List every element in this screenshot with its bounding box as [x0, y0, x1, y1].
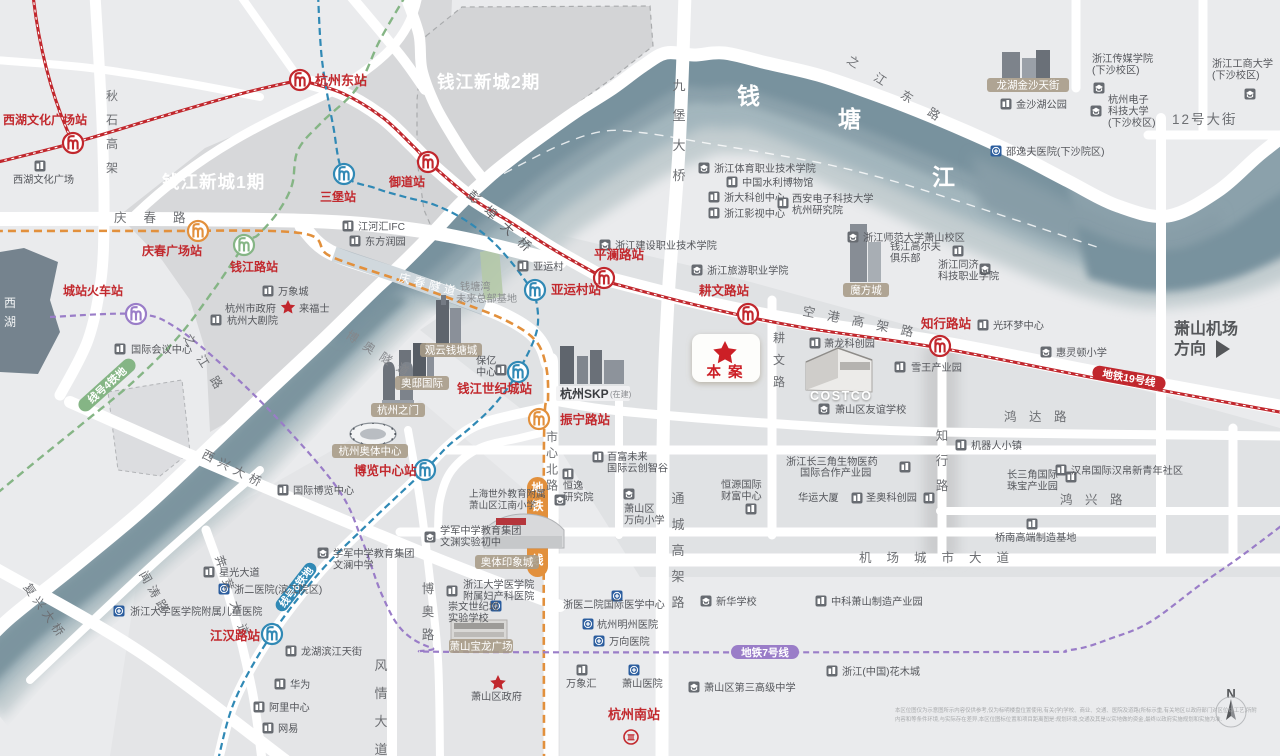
svg-text:江汉路站: 江汉路站 — [210, 628, 261, 643]
svg-text:中心: 中心 — [476, 366, 496, 379]
svg-text:学军中学教育集团: 学军中学教育集团 — [440, 524, 522, 537]
svg-text:COSTCO: COSTCO — [810, 389, 872, 403]
svg-text:魔方城: 魔方城 — [850, 284, 882, 297]
svg-text:未来总部基地: 未来总部基地 — [456, 292, 517, 305]
svg-text:庆春路: 庆春路 — [114, 210, 203, 225]
svg-text:萧山区友谊学校: 萧山区友谊学校 — [835, 403, 906, 416]
svg-text:浙江传媒学院: 浙江传媒学院 — [1092, 52, 1153, 65]
svg-text:杭州奥体中心: 杭州奥体中心 — [339, 445, 402, 458]
svg-text:通: 通 — [671, 491, 684, 506]
svg-text:萧山机场: 萧山机场 — [1174, 319, 1238, 338]
svg-text:浙江长三角生物医药: 浙江长三角生物医药 — [786, 455, 878, 468]
svg-text:文澜中学: 文澜中学 — [333, 559, 374, 572]
svg-text:堡: 堡 — [672, 108, 685, 123]
svg-text:桥南高端制造基地: 桥南高端制造基地 — [995, 531, 1077, 544]
svg-text:情: 情 — [374, 686, 387, 701]
svg-text:江河汇IFC: 江河汇IFC — [358, 220, 405, 233]
svg-text:杭州大剧院: 杭州大剧院 — [227, 314, 278, 327]
svg-text:国际会议中心: 国际会议中心 — [131, 343, 192, 356]
svg-text:秋: 秋 — [106, 89, 118, 103]
svg-text:(下沙校区): (下沙校区) — [1092, 64, 1140, 77]
svg-text:俱乐部: 俱乐部 — [890, 252, 921, 265]
svg-text:网易: 网易 — [278, 723, 298, 735]
svg-text:浙江体育职业技术学院: 浙江体育职业技术学院 — [714, 162, 816, 175]
svg-text:邵逸夫医院(下沙院区): 邵逸夫医院(下沙院区) — [1006, 145, 1104, 158]
svg-text:华为: 华为 — [290, 678, 310, 691]
svg-text:耕文路站: 耕文路站 — [699, 283, 750, 298]
svg-text:浙大科创中心: 浙大科创中心 — [724, 191, 785, 204]
svg-text:浙二医院(滨江院区): 浙二医院(滨江院区) — [234, 583, 322, 596]
svg-text:风: 风 — [374, 658, 387, 673]
svg-text:心: 心 — [546, 446, 558, 460]
svg-text:国际博览中心: 国际博览中心 — [293, 484, 354, 497]
svg-text:塘: 塘 — [838, 106, 861, 132]
svg-text:东方润园: 东方润园 — [365, 235, 406, 248]
svg-text:西湖文化广场站: 西湖文化广场站 — [3, 112, 87, 127]
svg-text:高: 高 — [671, 543, 684, 558]
svg-text:浙江(中国)花木城: 浙江(中国)花木城 — [842, 665, 920, 678]
svg-text:博览中心站: 博览中心站 — [354, 463, 417, 478]
svg-text:振宁路站: 振宁路站 — [560, 412, 611, 427]
svg-text:浙江旅游职业学院: 浙江旅游职业学院 — [707, 264, 789, 277]
svg-text:钱塘湾: 钱塘湾 — [460, 280, 491, 293]
svg-text:杭州东站: 杭州东站 — [315, 73, 367, 88]
svg-text:浙江大学医学院: 浙江大学医学院 — [463, 578, 534, 591]
svg-text:城站火车站: 城站火车站 — [63, 283, 123, 298]
svg-text:鸿达路: 鸿达路 — [1004, 409, 1079, 424]
svg-text:珠宝产业园: 珠宝产业园 — [1007, 480, 1058, 493]
svg-text:(下沙校区): (下沙校区) — [1108, 116, 1156, 129]
svg-text:恒源国际: 恒源国际 — [721, 478, 762, 491]
svg-text:路: 路 — [671, 595, 684, 610]
svg-text:萧山区政府: 萧山区政府 — [471, 690, 522, 703]
svg-text:方向: 方向 — [1174, 339, 1206, 358]
svg-text:学军中学教育集团: 学军中学教育集团 — [333, 547, 415, 560]
svg-text:光环梦中心: 光环梦中心 — [993, 319, 1044, 332]
svg-text:架: 架 — [671, 569, 684, 584]
svg-text:知: 知 — [936, 429, 949, 443]
svg-text:市: 市 — [546, 429, 558, 444]
svg-text:鸿兴路: 鸿兴路 — [1060, 492, 1135, 507]
svg-text:新华学校: 新华学校 — [716, 595, 757, 608]
svg-text:萧山宝龙广场: 萧山宝龙广场 — [450, 640, 513, 653]
svg-text:万象汇: 万象汇 — [566, 677, 597, 690]
svg-text:研究院: 研究院 — [563, 491, 594, 504]
svg-text:万向医院: 万向医院 — [609, 635, 650, 648]
svg-text:萧山医院: 萧山医院 — [622, 677, 663, 690]
svg-text:中国水利博物馆: 中国水利博物馆 — [742, 176, 813, 189]
svg-text:御道站: 御道站 — [388, 174, 425, 189]
svg-text:本案: 本案 — [707, 363, 750, 381]
svg-text:科技职业学院: 科技职业学院 — [938, 270, 999, 283]
svg-text:恒逸: 恒逸 — [563, 479, 583, 492]
svg-text:实验学校: 实验学校 — [448, 612, 489, 625]
svg-text:杭州SKP: 杭州SKP — [560, 386, 609, 401]
svg-text:西: 西 — [4, 296, 16, 310]
svg-text:万象城: 万象城 — [278, 286, 309, 298]
svg-text:西安电子科技大学: 西安电子科技大学 — [792, 192, 874, 205]
svg-text:大: 大 — [672, 138, 685, 153]
svg-text:九: 九 — [672, 78, 685, 93]
svg-text:萧山区江南小学: 萧山区江南小学 — [469, 500, 537, 512]
svg-text:钱: 钱 — [737, 83, 760, 109]
svg-text:N: N — [1226, 686, 1235, 701]
svg-text:博: 博 — [422, 581, 435, 596]
svg-text:12号大街: 12号大街 — [1172, 112, 1238, 127]
svg-text:杭州南站: 杭州南站 — [608, 707, 660, 722]
svg-text:奥体印象城: 奥体印象城 — [481, 556, 534, 569]
svg-text:奥: 奥 — [422, 605, 435, 619]
svg-text:路: 路 — [936, 478, 949, 493]
svg-text:上海世外教育附属: 上海世外教育附属 — [469, 488, 546, 500]
svg-text:行: 行 — [936, 454, 949, 468]
svg-text:萧山区第三高级中学: 萧山区第三高级中学 — [704, 681, 796, 694]
svg-text:财富中心: 财富中心 — [721, 490, 762, 503]
svg-text:阿里中心: 阿里中心 — [269, 701, 310, 714]
svg-text:路: 路 — [773, 374, 785, 389]
svg-text:百富未来: 百富未来 — [607, 450, 648, 463]
svg-text:浙医二院国际医学中心: 浙医二院国际医学中心 — [563, 598, 665, 611]
svg-text:文: 文 — [773, 352, 785, 367]
svg-text:金沙湖公园: 金沙湖公园 — [1016, 98, 1067, 111]
svg-text:杭州市政府: 杭州市政府 — [225, 302, 276, 315]
svg-text:道: 道 — [374, 742, 387, 756]
svg-text:万向小学: 万向小学 — [624, 514, 665, 527]
svg-text:(下沙校区): (下沙校区) — [1212, 69, 1260, 82]
svg-text:平澜路站: 平澜路站 — [594, 247, 645, 262]
svg-text:保亿: 保亿 — [476, 354, 496, 367]
svg-text:内容和等条件环境,与实际存在差异,本区位图标位置和项目距离图: 内容和等条件环境,与实际存在差异,本区位图标位置和项目距离图是:规划环境,交通及… — [895, 715, 1222, 723]
svg-text:路: 路 — [422, 627, 435, 642]
svg-text:江: 江 — [932, 164, 955, 190]
svg-text:华运大厦: 华运大厦 — [798, 491, 839, 504]
svg-text:桥: 桥 — [672, 168, 685, 183]
svg-text:石: 石 — [106, 113, 118, 127]
svg-text:杭州研究院: 杭州研究院 — [792, 204, 843, 217]
svg-text:三堡站: 三堡站 — [320, 189, 356, 204]
svg-text:国际合作产业园: 国际合作产业园 — [800, 466, 871, 479]
svg-text:科技大学: 科技大学 — [1108, 105, 1149, 118]
svg-text:城: 城 — [671, 517, 684, 532]
svg-text:崇文世纪城: 崇文世纪城 — [448, 600, 499, 613]
svg-text:雪王产业园: 雪王产业园 — [911, 361, 962, 374]
svg-text:长三角国际: 长三角国际 — [1007, 469, 1058, 481]
svg-text:杭州之门: 杭州之门 — [377, 404, 419, 417]
svg-text:亚运村: 亚运村 — [533, 260, 564, 273]
svg-text:浙江影视中心: 浙江影视中心 — [724, 207, 785, 220]
svg-text:机场城市大道: 机场城市大道 — [859, 550, 1024, 565]
svg-text:架: 架 — [106, 161, 118, 175]
svg-text:机器人小镇: 机器人小镇 — [971, 439, 1022, 452]
svg-text:观云钱塘城: 观云钱塘城 — [425, 344, 478, 357]
svg-text:中科萧山制造产业园: 中科萧山制造产业园 — [831, 595, 923, 608]
svg-text:钱江新城2期: 钱江新城2期 — [437, 72, 540, 92]
svg-text:萧龙科创园: 萧龙科创园 — [824, 337, 875, 350]
svg-text:国际云创智谷: 国际云创智谷 — [607, 462, 668, 475]
svg-text:钱江路站: 钱江路站 — [230, 259, 278, 274]
svg-text:龙湖滨江天街: 龙湖滨江天街 — [301, 645, 362, 658]
svg-text:浙江同济: 浙江同济 — [938, 258, 979, 271]
svg-text:庆春广场站: 庆春广场站 — [141, 243, 202, 258]
svg-text:浙江工商大学: 浙江工商大学 — [1212, 57, 1273, 70]
svg-text:文渊实验初中: 文渊实验初中 — [440, 536, 501, 549]
svg-text:西湖文化广场: 西湖文化广场 — [13, 173, 74, 186]
svg-text:北: 北 — [546, 462, 558, 476]
svg-text:(在建): (在建) — [610, 389, 632, 399]
svg-text:湖: 湖 — [4, 314, 16, 329]
svg-text:钱江新城1期: 钱江新城1期 — [162, 172, 265, 192]
svg-text:杭州电子: 杭州电子 — [1108, 93, 1149, 106]
svg-text:本区位图仅为示意图所示内容仅供参考,仅为标明楼盘位置使用,有: 本区位图仅为示意图所示内容仅供参考,仅为标明楼盘位置使用,有关(学)学校、商业、… — [895, 706, 1257, 714]
svg-text:知行路站: 知行路站 — [920, 316, 972, 331]
svg-text:路: 路 — [546, 478, 558, 493]
svg-text:萧山区: 萧山区 — [624, 503, 655, 515]
svg-text:圣奥科创园: 圣奥科创园 — [866, 491, 917, 504]
svg-text:惠灵顿小学: 惠灵顿小学 — [1056, 346, 1107, 359]
svg-text:来福士: 来福士 — [299, 302, 330, 315]
svg-text:大: 大 — [374, 714, 387, 729]
svg-text:钱江高尔夫: 钱江高尔夫 — [890, 240, 941, 253]
svg-text:汉帛国际汉帛新青年社区: 汉帛国际汉帛新青年社区 — [1071, 464, 1183, 477]
svg-text:龙湖金沙天街: 龙湖金沙天街 — [997, 79, 1060, 92]
svg-text:耕: 耕 — [773, 330, 785, 345]
svg-text:地铁7号线: 地铁7号线 — [741, 646, 789, 659]
svg-text:亚运村站: 亚运村站 — [551, 282, 602, 297]
svg-text:高: 高 — [106, 136, 118, 151]
svg-text:杭州明州医院: 杭州明州医院 — [597, 618, 658, 631]
svg-text:钱江世纪城站: 钱江世纪城站 — [457, 381, 533, 396]
